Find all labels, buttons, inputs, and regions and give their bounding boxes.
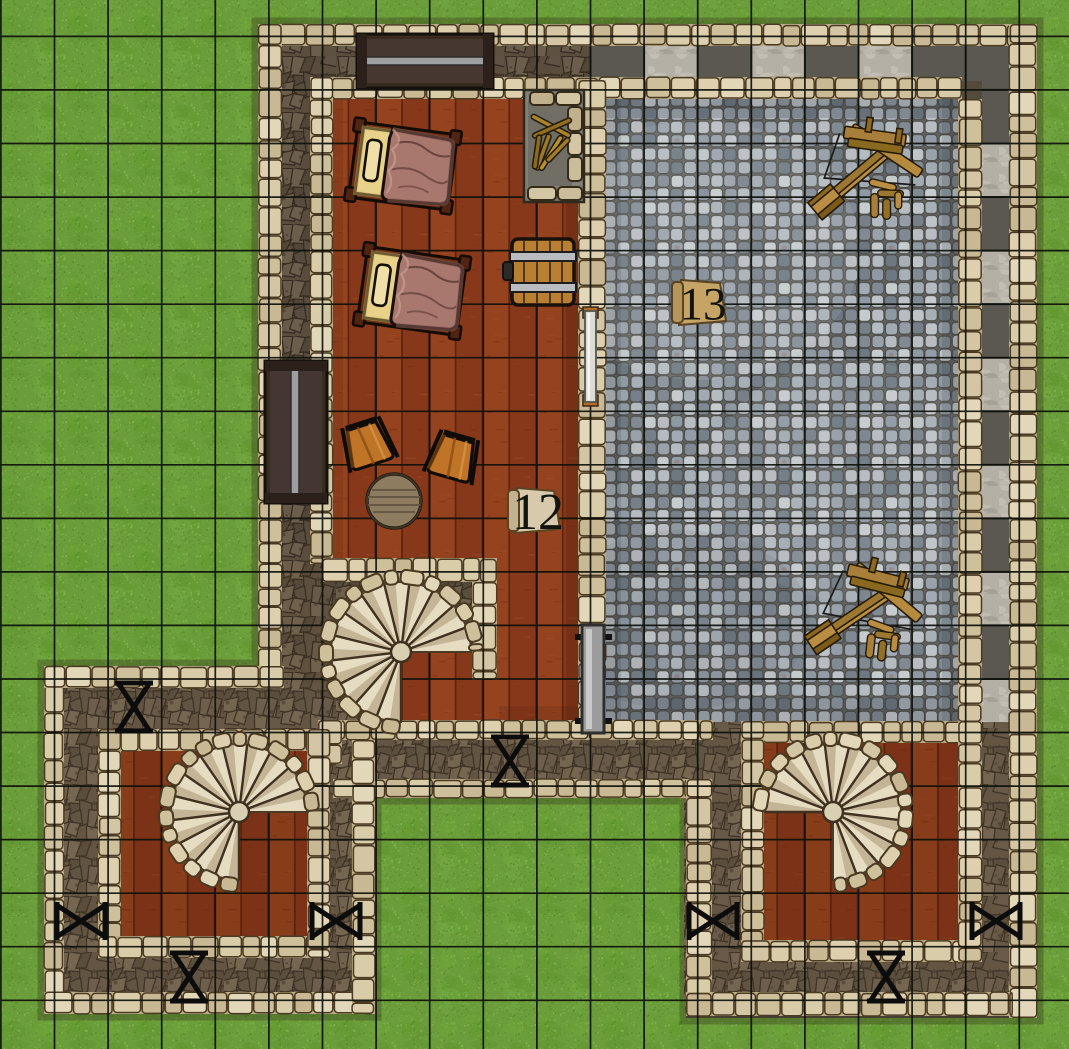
svg-text:13: 13: [680, 279, 727, 331]
svg-text:12: 12: [512, 484, 564, 541]
